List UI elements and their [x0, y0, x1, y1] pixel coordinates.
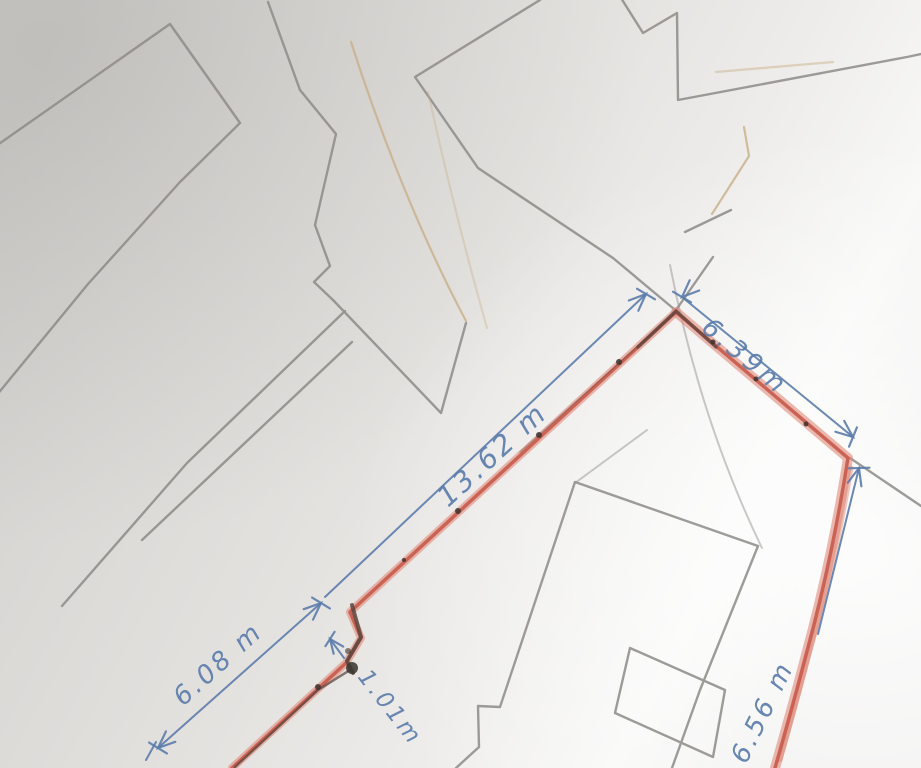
- survey-dot: [804, 422, 809, 427]
- corner-ink-blob-small: [345, 648, 351, 654]
- photographed-sketch-page: 13.62 m 6.39m 6.56 m 6.08 m 1.01m: [0, 0, 921, 768]
- survey-dot: [616, 359, 622, 365]
- survey-dot: [315, 684, 321, 690]
- survey-dot: [402, 558, 406, 562]
- corner-ink-blob: [346, 662, 358, 674]
- sketch-plan-svg: 13.62 m 6.39m 6.56 m 6.08 m 1.01m: [0, 0, 921, 768]
